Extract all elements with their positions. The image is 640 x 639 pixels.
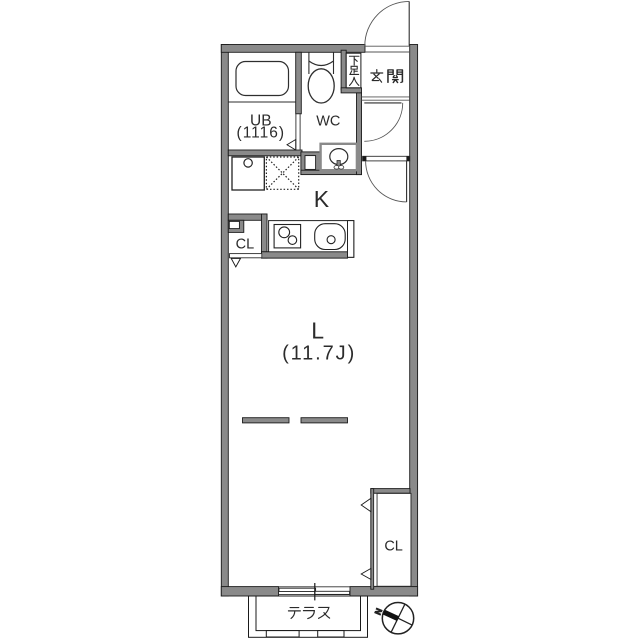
svg-text:K: K bbox=[314, 186, 330, 212]
svg-text:(11.7J): (11.7J) bbox=[282, 343, 356, 365]
svg-text:(1116): (1116) bbox=[237, 125, 286, 142]
svg-text:CL: CL bbox=[236, 236, 255, 252]
svg-text:WC: WC bbox=[316, 113, 340, 129]
svg-text:L: L bbox=[311, 318, 324, 344]
svg-text:CL: CL bbox=[384, 539, 403, 555]
